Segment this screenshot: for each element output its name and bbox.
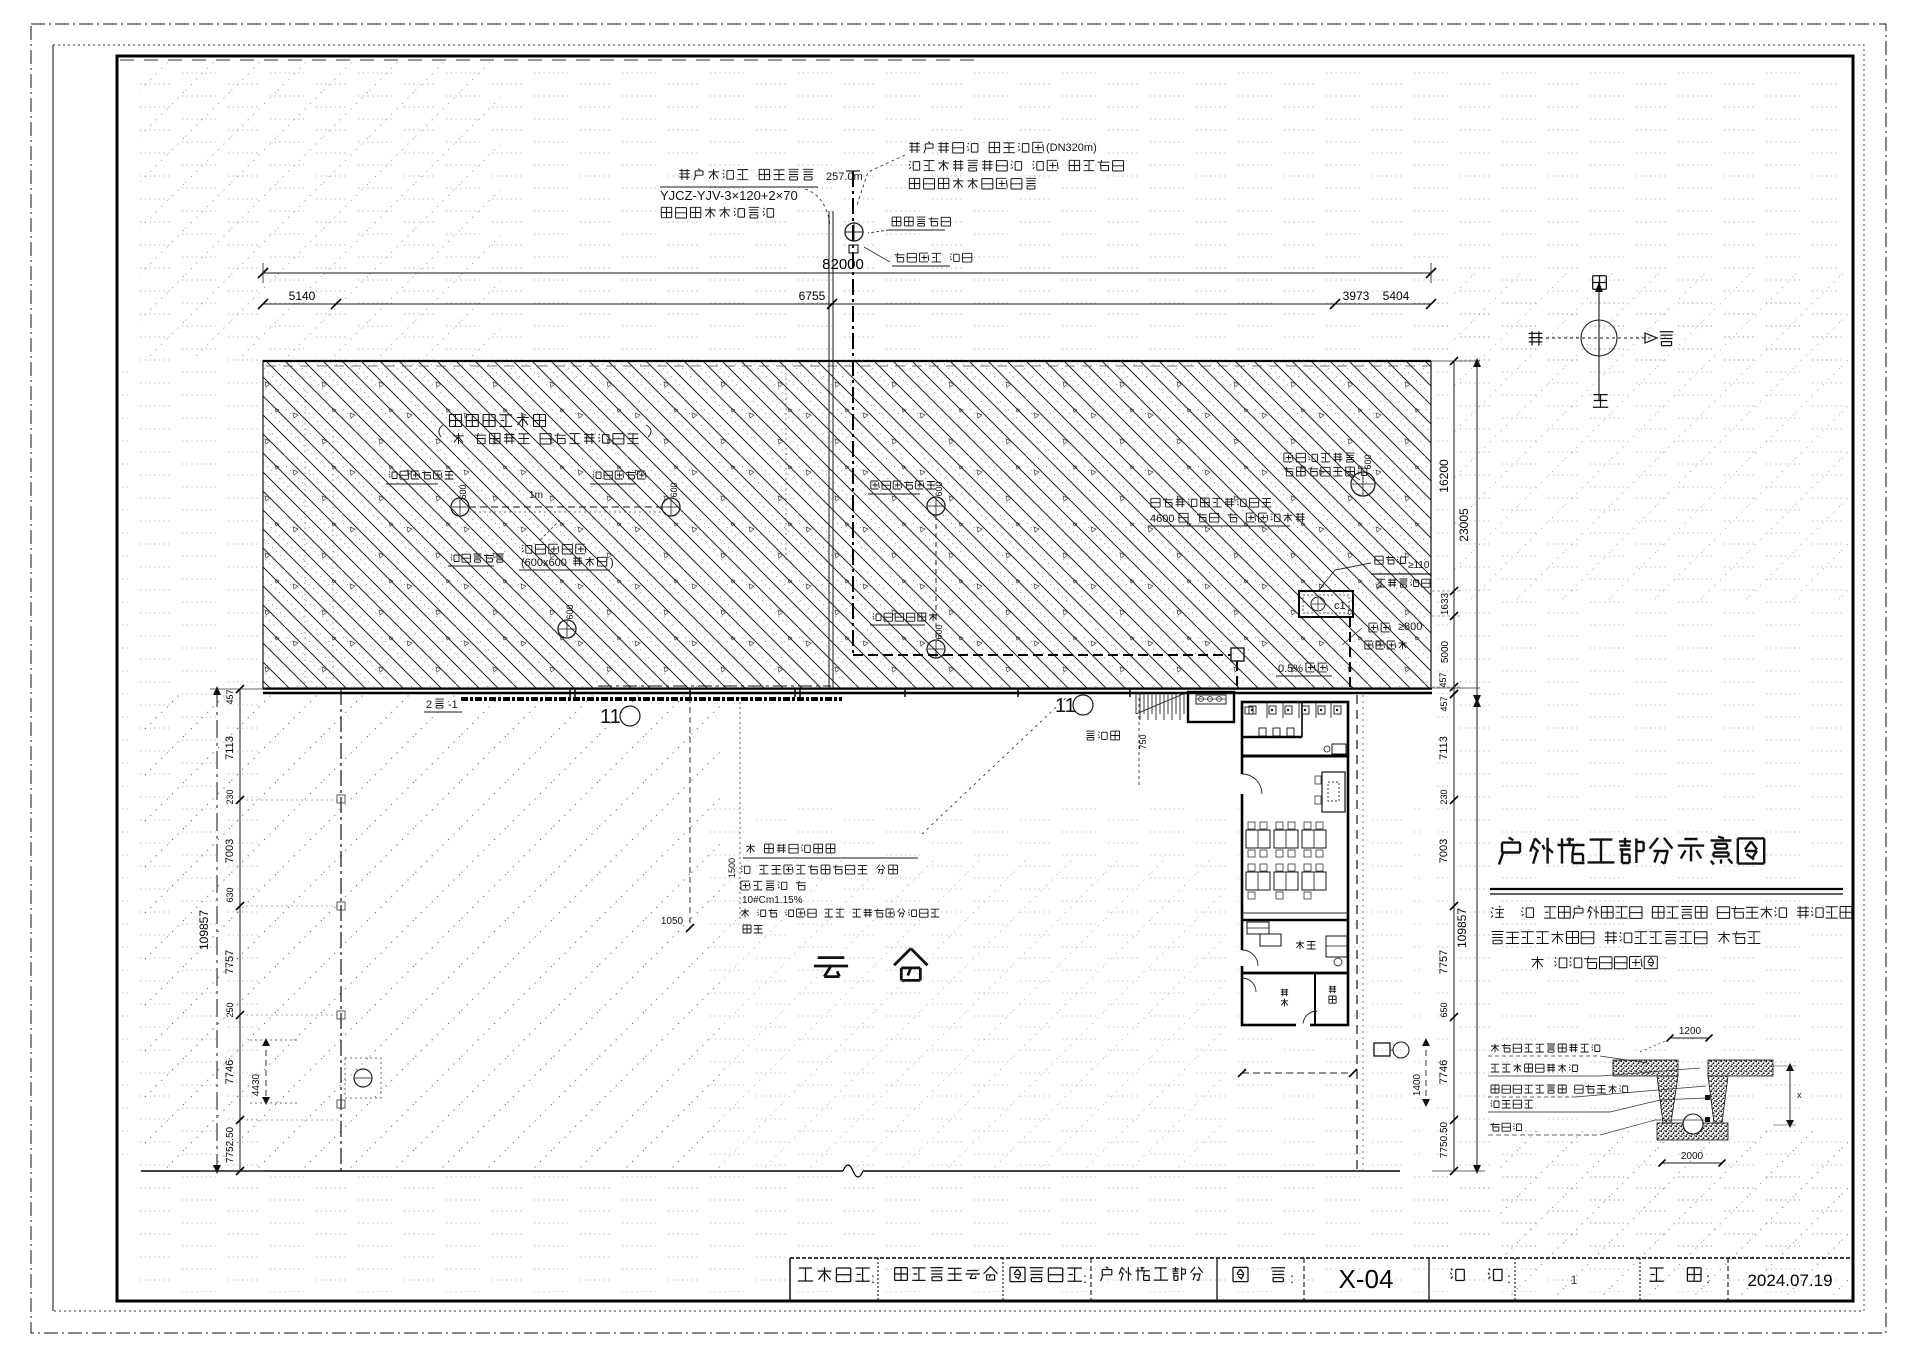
- svg-text:≥110: ≥110: [1408, 560, 1430, 571]
- svg-text:7746: 7746: [224, 1060, 236, 1084]
- svg-text:c1: c1: [1334, 600, 1346, 612]
- svg-text:109857: 109857: [1455, 908, 1469, 948]
- svg-text:7113: 7113: [224, 736, 236, 760]
- svg-text:2: 2: [426, 699, 432, 711]
- svg-text:7003: 7003: [224, 839, 236, 863]
- svg-text:109857: 109857: [197, 910, 211, 950]
- svg-text:5404: 5404: [1383, 289, 1410, 303]
- svg-text:1400: 1400: [1412, 1073, 1423, 1096]
- svg-text:7113: 7113: [1438, 736, 1450, 760]
- svg-text:600: 600: [669, 482, 679, 497]
- svg-text:600: 600: [1363, 454, 1373, 469]
- svg-text:1: 1: [1571, 1273, 1578, 1287]
- svg-text:16200: 16200: [1437, 459, 1451, 493]
- svg-text:0.5%: 0.5%: [1278, 663, 1303, 675]
- svg-text:257.0m: 257.0m: [826, 171, 863, 183]
- svg-text:7746: 7746: [1438, 1060, 1450, 1084]
- svg-text:600: 600: [565, 604, 575, 619]
- svg-text:(600x600: (600x600: [521, 557, 567, 569]
- svg-text:600: 600: [458, 484, 468, 499]
- svg-text:457: 457: [1438, 672, 1448, 687]
- svg-text:230: 230: [225, 789, 235, 804]
- svg-text:1633: 1633: [1440, 592, 1451, 615]
- svg-text:): ): [610, 557, 614, 569]
- svg-text:650: 650: [1439, 1002, 1449, 1017]
- svg-text:7757: 7757: [224, 950, 236, 974]
- svg-text:3973: 3973: [1343, 289, 1370, 303]
- svg-text:YJCZ-YJV-3×120+2×70: YJCZ-YJV-3×120+2×70: [660, 188, 798, 203]
- svg-text:82000: 82000: [822, 256, 864, 273]
- svg-text:23005: 23005: [1457, 508, 1471, 542]
- svg-text:1m: 1m: [529, 490, 543, 501]
- svg-text:X-04: X-04: [1339, 1264, 1394, 1294]
- svg-text:2000: 2000: [1681, 1151, 1704, 1162]
- svg-text::: :: [1083, 1270, 1087, 1286]
- svg-text:630: 630: [225, 887, 235, 902]
- svg-text:2024.07.19: 2024.07.19: [1747, 1271, 1832, 1290]
- svg-text:7003: 7003: [1438, 839, 1450, 863]
- svg-text::: :: [871, 1270, 875, 1286]
- svg-text:7757: 7757: [1438, 950, 1450, 974]
- svg-text:10#Cm1.15%: 10#Cm1.15%: [742, 895, 803, 906]
- svg-text:x: x: [1797, 1090, 1802, 1100]
- svg-text:250: 250: [225, 1002, 235, 1017]
- svg-text:7750.50: 7750.50: [1439, 1121, 1450, 1158]
- svg-text::: :: [1290, 1270, 1294, 1286]
- svg-text:457: 457: [225, 689, 235, 704]
- svg-text:600: 600: [934, 624, 944, 639]
- svg-text:4430: 4430: [251, 1073, 262, 1096]
- svg-text:750: 750: [1138, 734, 1148, 749]
- svg-text:1500: 1500: [727, 858, 737, 878]
- svg-text:6755: 6755: [799, 289, 826, 303]
- svg-text:7752.50: 7752.50: [225, 1126, 236, 1163]
- svg-text:1200: 1200: [1679, 1026, 1702, 1037]
- svg-text:230: 230: [1439, 789, 1449, 804]
- svg-text:(DN320m): (DN320m): [1046, 142, 1097, 154]
- svg-text:≥800: ≥800: [1398, 621, 1422, 633]
- svg-text:11: 11: [600, 706, 621, 728]
- svg-text:5000: 5000: [1440, 640, 1451, 663]
- svg-text:4600: 4600: [1150, 513, 1174, 525]
- svg-text:457: 457: [1439, 696, 1449, 711]
- svg-text::: :: [1706, 1270, 1710, 1286]
- svg-text:1050: 1050: [661, 916, 684, 927]
- svg-text:5140: 5140: [289, 289, 316, 303]
- svg-text::: :: [1507, 1270, 1511, 1286]
- svg-text:-1: -1: [448, 699, 458, 711]
